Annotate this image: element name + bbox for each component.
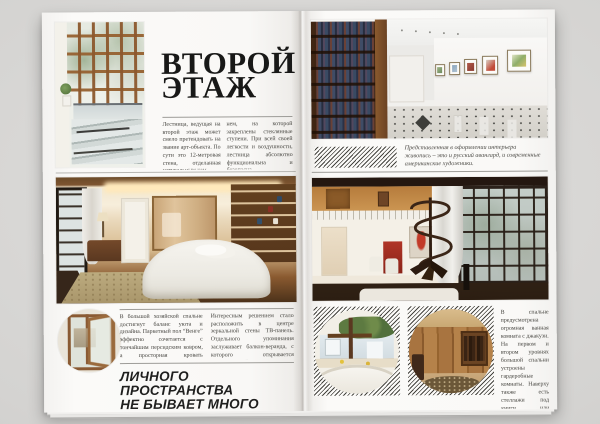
hatch-decoration bbox=[315, 146, 397, 168]
intro-column-1: Лестница, ведущая на второй этаж может с… bbox=[162, 121, 220, 169]
divider-rule bbox=[312, 170, 548, 172]
photo-layer bbox=[67, 22, 144, 107]
lower-column-2: Интересным решением стало расположить в … bbox=[211, 313, 294, 360]
photo-layer bbox=[409, 309, 493, 328]
divider-rule bbox=[56, 171, 296, 173]
photo-layer bbox=[277, 196, 282, 202]
photo-layer bbox=[378, 191, 389, 206]
living-room-photo bbox=[312, 176, 549, 300]
bathroom-photo bbox=[315, 309, 400, 394]
bedroom-photo bbox=[56, 176, 297, 303]
photo-layer bbox=[121, 198, 150, 263]
section-headline-line2: НЕ БЫВАЕТ МНОГО bbox=[120, 397, 300, 412]
photo-layer bbox=[311, 22, 380, 139]
section-headline: ЛИЧНОГО ПРОСТРАНСТВА НЕ БЫВАЕТ МНОГО bbox=[120, 369, 300, 412]
hatched-photo-tile bbox=[408, 306, 495, 396]
photo-layer bbox=[325, 338, 341, 355]
lower-column-1: В большой хозяйской спальне достигнут ба… bbox=[120, 314, 203, 361]
gallery-photo bbox=[311, 18, 548, 138]
photo-layer bbox=[401, 29, 403, 31]
divider-rule bbox=[120, 362, 294, 364]
right-page: Представленная в оформлении интерьера жи… bbox=[300, 9, 557, 411]
photo-layer bbox=[463, 336, 485, 361]
photo-layer bbox=[458, 185, 548, 284]
photo-layer bbox=[62, 95, 71, 106]
divider-rule bbox=[162, 116, 292, 118]
photo-layer bbox=[383, 241, 402, 273]
photo-layer bbox=[315, 365, 400, 394]
photo-layer bbox=[88, 312, 116, 370]
photo-layer bbox=[369, 256, 382, 271]
photo-layer bbox=[348, 318, 352, 360]
wardrobe-photo bbox=[409, 309, 494, 394]
side-column: В спальне предусмотрена огромная ванная … bbox=[501, 308, 550, 408]
hatched-photo-tile bbox=[314, 306, 401, 396]
atrium-photo bbox=[55, 22, 145, 168]
photo-layer bbox=[71, 119, 142, 164]
photo-layer bbox=[322, 227, 348, 276]
photo-layer bbox=[102, 221, 104, 237]
gallery-caption: Представленная в оформлении интерьера жи… bbox=[405, 144, 541, 172]
artwork-frame bbox=[464, 59, 477, 74]
photo-layer bbox=[453, 115, 462, 133]
artwork-frame bbox=[435, 64, 445, 76]
photo-layer bbox=[375, 19, 388, 138]
photo-layer bbox=[97, 212, 109, 221]
article-title: ВТОРОЙ ЭТАЖ bbox=[161, 51, 297, 100]
divider-rule bbox=[120, 308, 294, 310]
intro-column-2: нем, на которой закреплены стеклянные ст… bbox=[226, 121, 292, 169]
magazine-spread: ВТОРОЙ ЭТАЖ Лестница, ведущая на второй … bbox=[42, 9, 557, 412]
window-detail-photo bbox=[58, 309, 121, 372]
artwork-frame bbox=[507, 50, 531, 72]
photo-layer bbox=[463, 264, 469, 290]
photo-layer bbox=[389, 55, 424, 102]
left-page: ВТОРОЙ ЭТАЖ Лестница, ведущая на второй … bbox=[42, 11, 302, 413]
photo-layer bbox=[326, 189, 350, 209]
spiral-staircase-shape bbox=[402, 189, 459, 285]
artwork-frame bbox=[482, 56, 498, 75]
photo-layer bbox=[412, 355, 424, 380]
artwork-frame bbox=[449, 62, 460, 75]
section-headline-line1: ЛИЧНОГО ПРОСТРАНСТВА bbox=[120, 369, 300, 398]
photo-layer bbox=[360, 288, 459, 301]
